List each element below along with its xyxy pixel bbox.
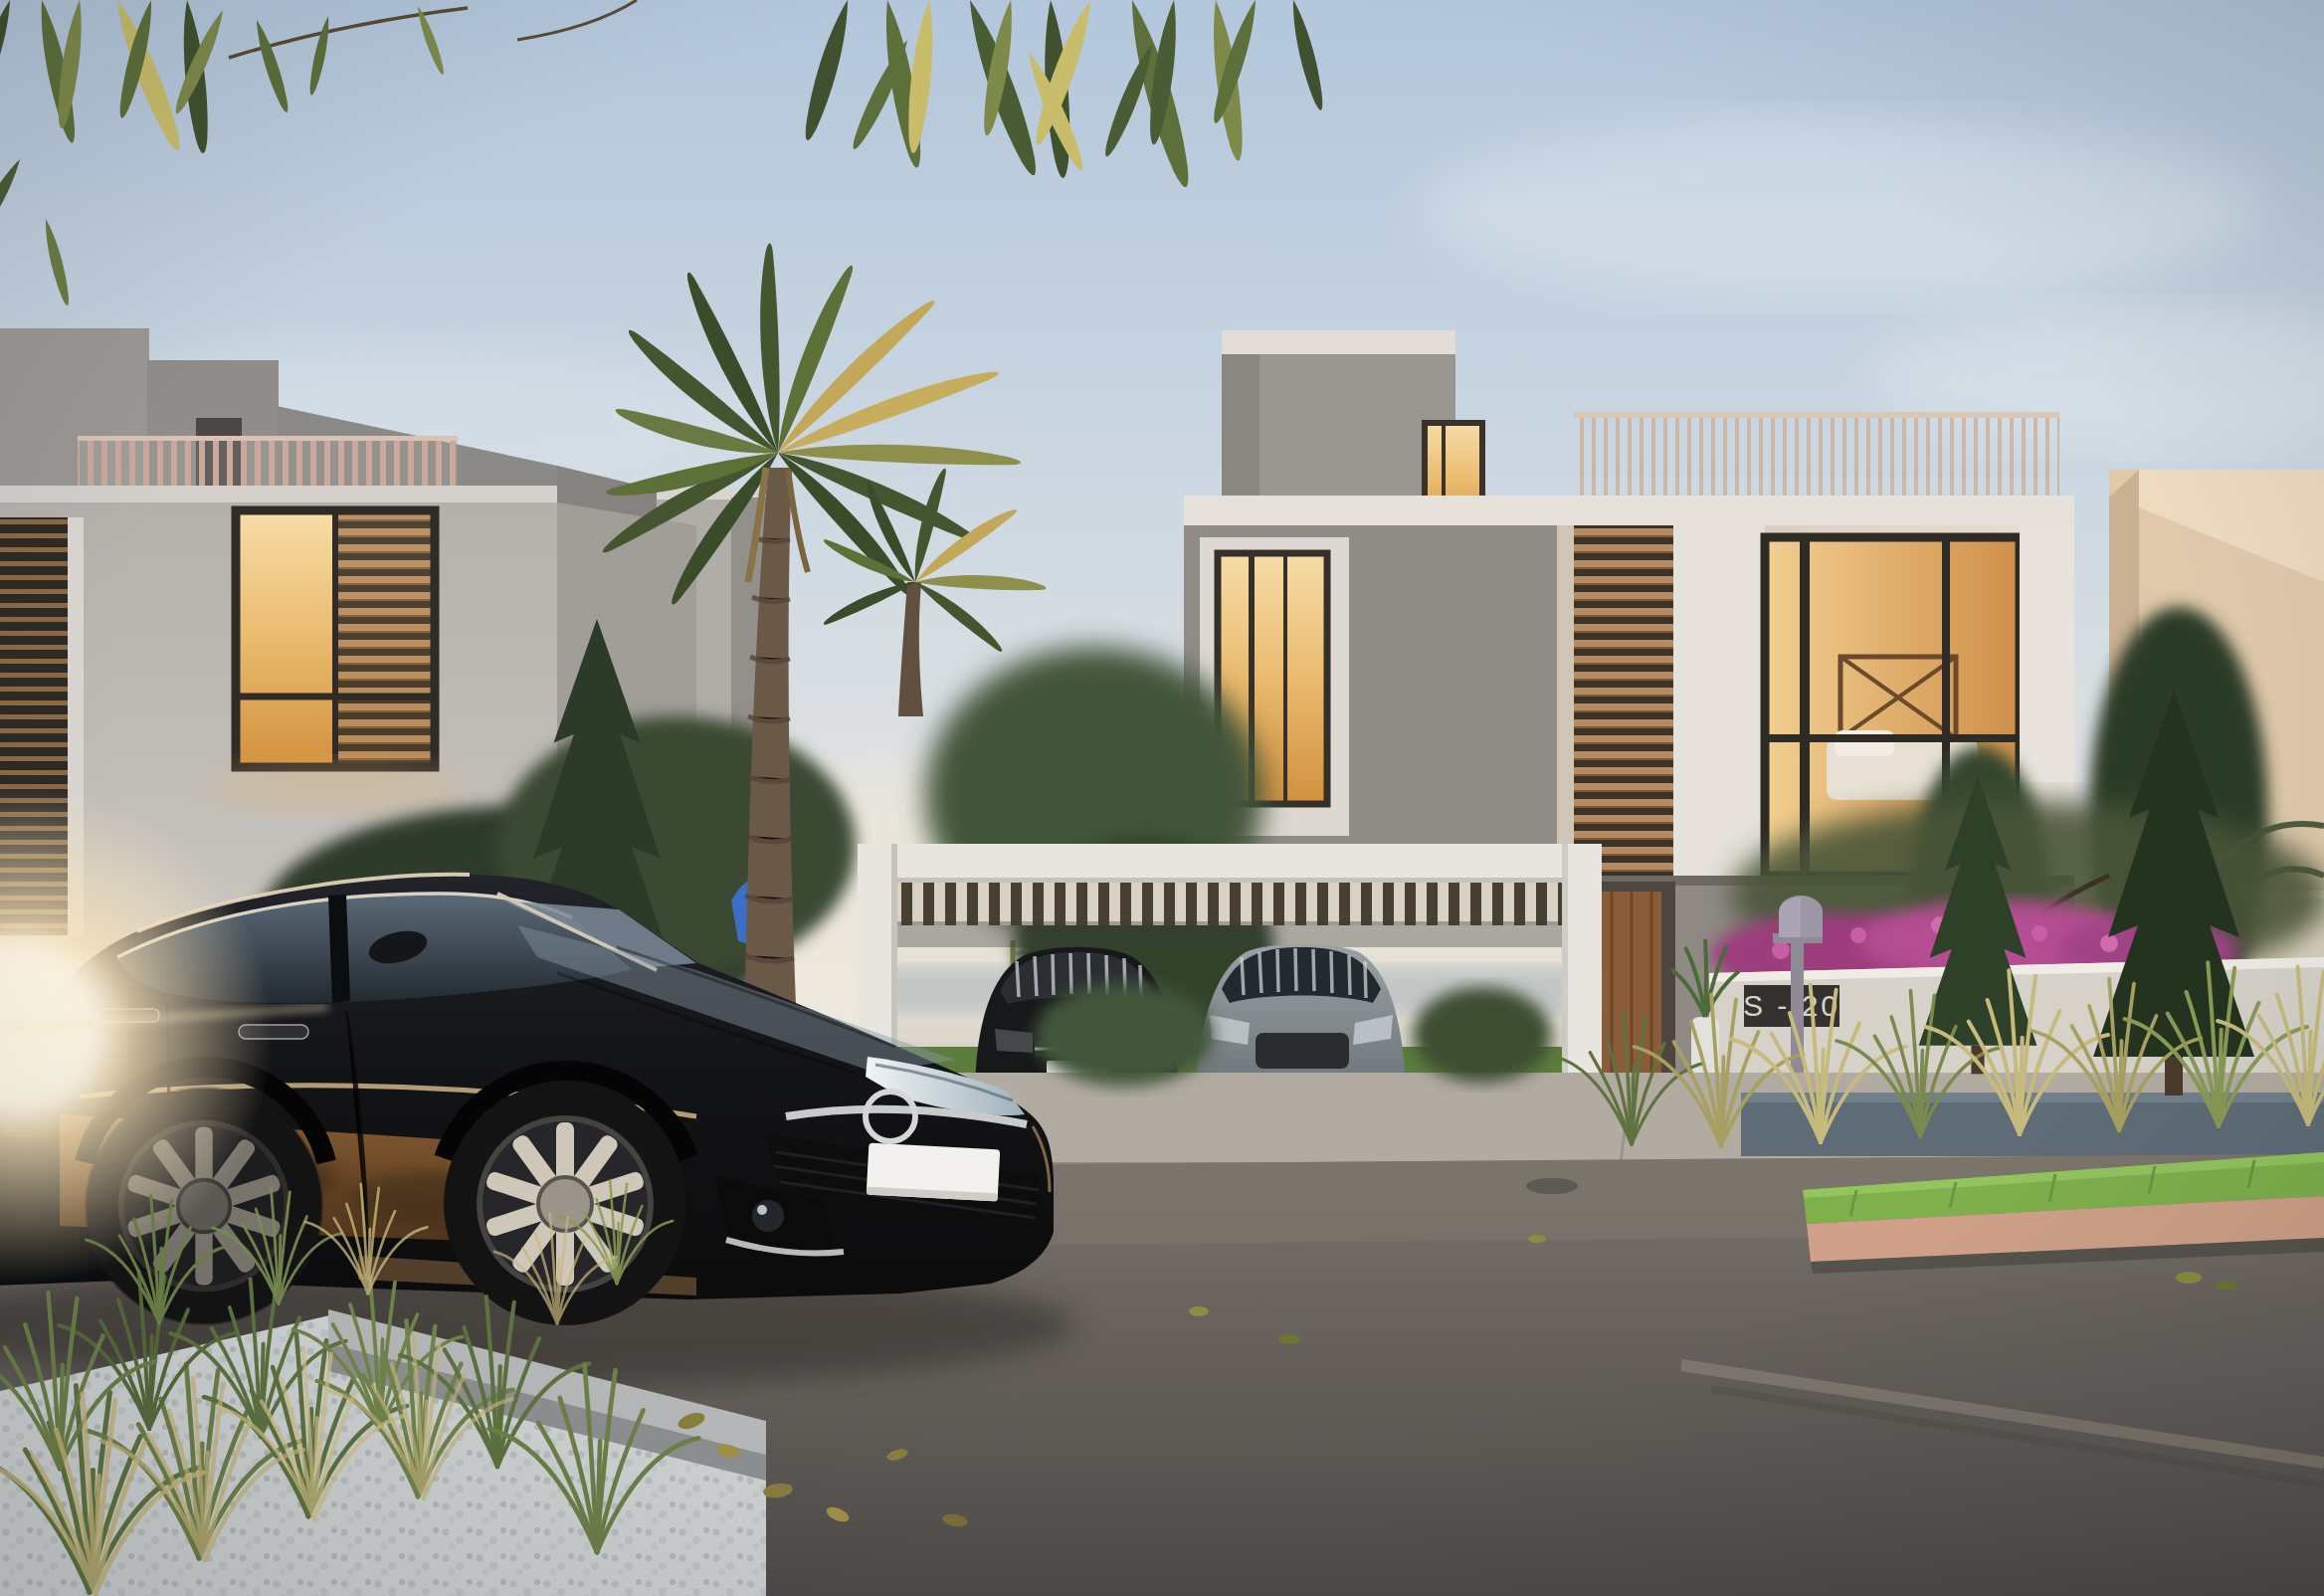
architectural-render-scene: S - 20 <box>0 0 2324 1596</box>
vignette <box>0 0 2324 1596</box>
render-canvas: S - 20 <box>0 0 2324 1596</box>
